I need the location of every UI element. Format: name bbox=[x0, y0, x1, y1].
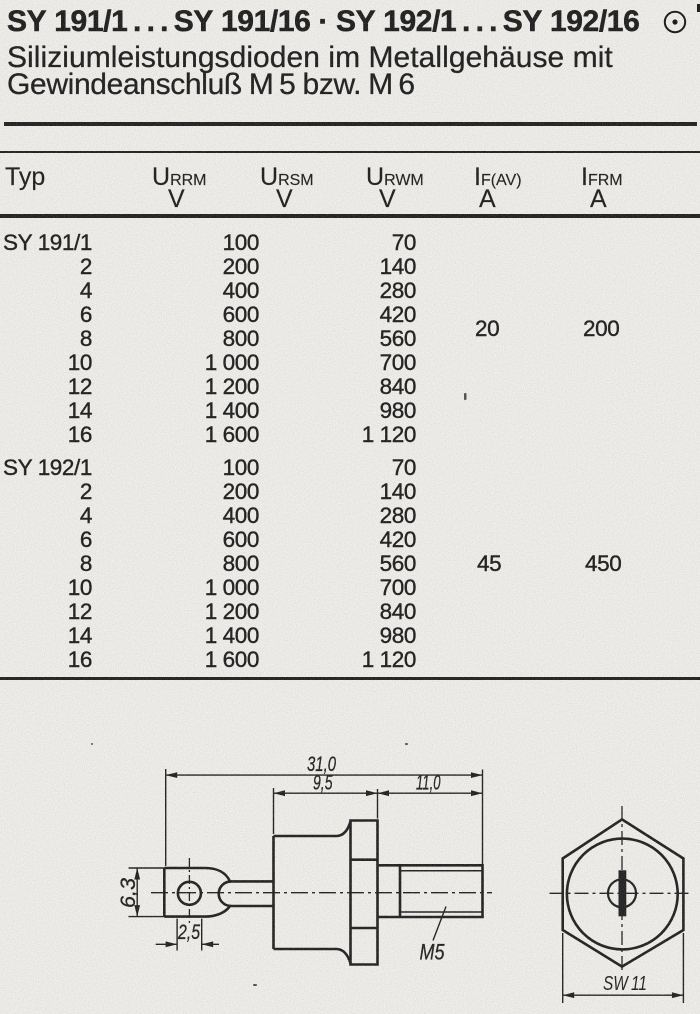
svg-text:SW 11: SW 11 bbox=[603, 973, 647, 995]
svg-text:9,5: 9,5 bbox=[313, 772, 333, 795]
svg-text:6,3: 6,3 bbox=[117, 878, 140, 908]
svg-text:M5: M5 bbox=[420, 940, 446, 965]
svg-text:2,5: 2,5 bbox=[177, 921, 200, 944]
svg-text:11,0: 11,0 bbox=[416, 772, 441, 795]
